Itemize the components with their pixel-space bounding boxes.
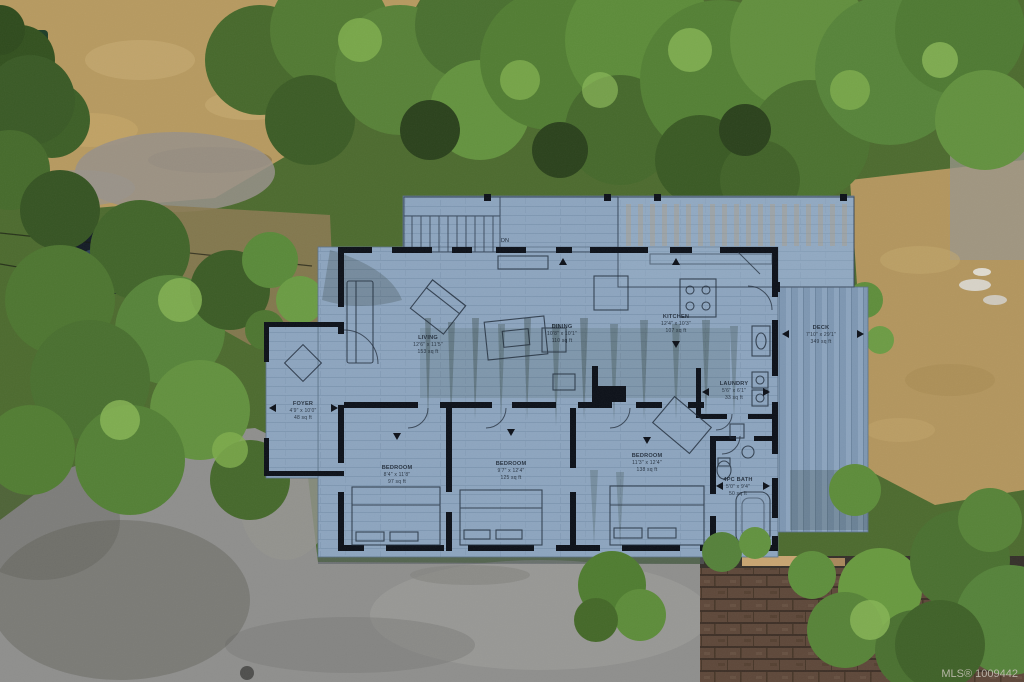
mls-watermark: MLS® 1009442: [941, 668, 1018, 680]
photo-canvas: LIVING 12'6" x 11'5" 153 sq ft DINING 10…: [0, 0, 1024, 682]
aerial-photo: LIVING 12'6" x 11'5" 153 sq ft DINING 10…: [0, 0, 1024, 682]
photo-grain: [0, 0, 1024, 682]
